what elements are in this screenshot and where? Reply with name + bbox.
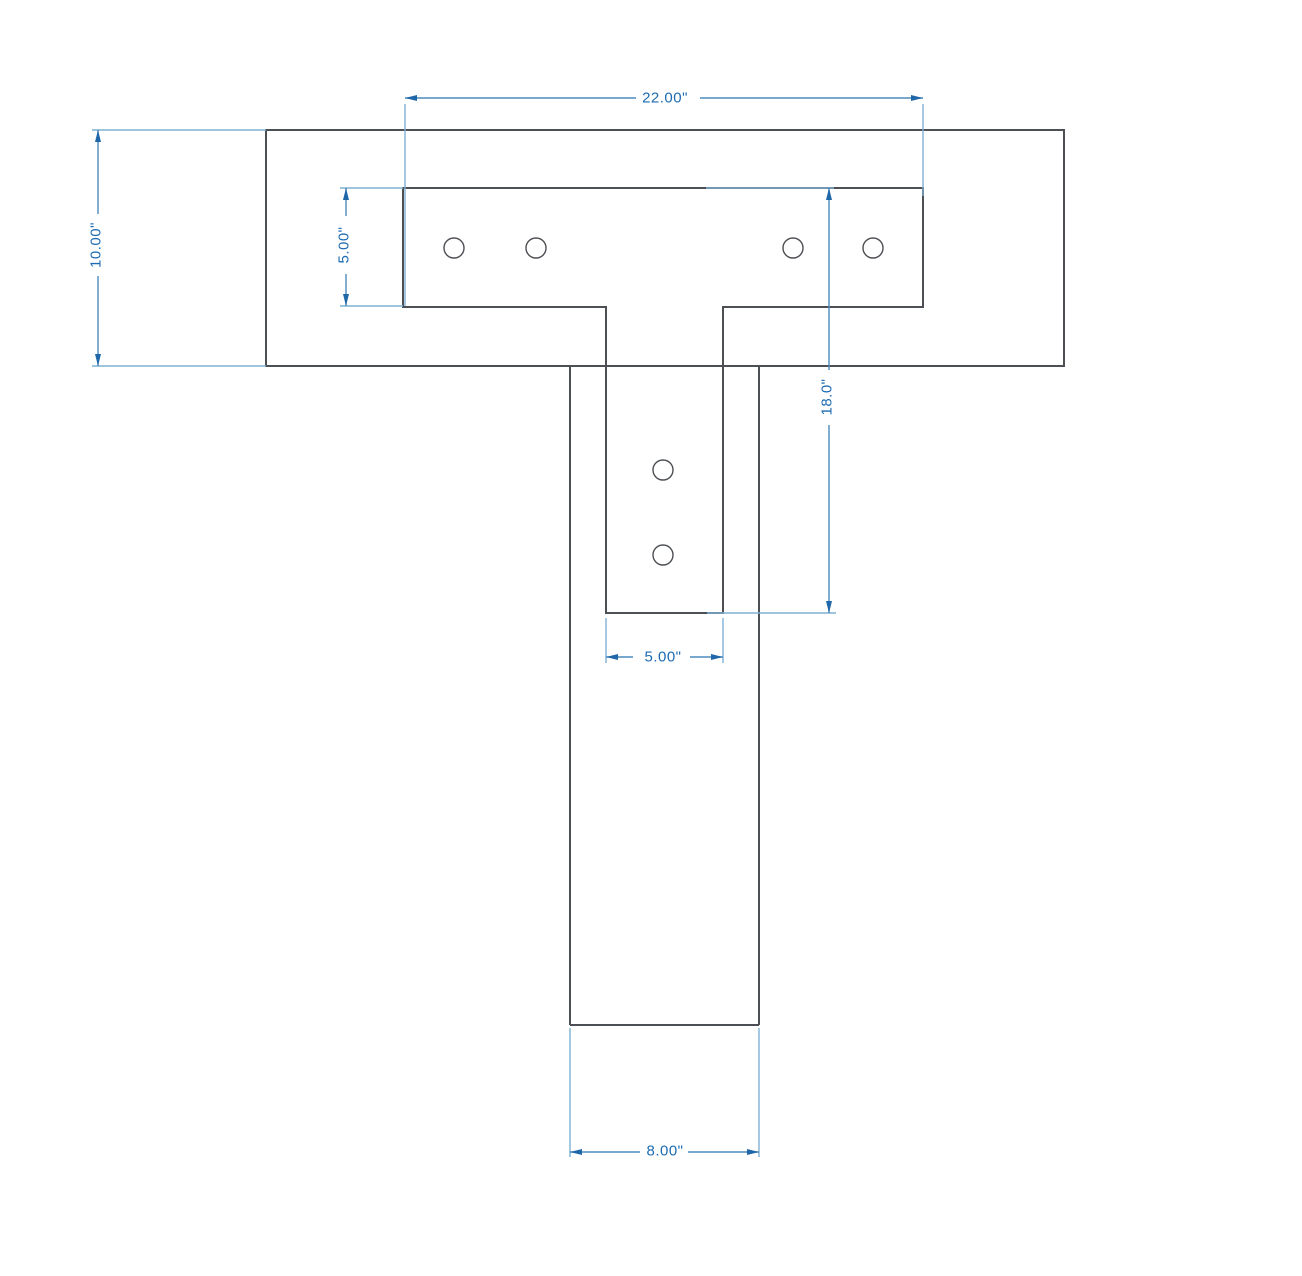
dim-plate-arm-height-label: 5.00"	[336, 226, 353, 263]
dim-plate-width-arrowhead	[405, 95, 417, 101]
dim-beam-height-arrowhead	[95, 130, 101, 142]
dim-bracket-height-label: 18.0"	[819, 378, 836, 415]
dim-bracket-height-arrowhead	[826, 601, 832, 613]
beam-outline	[266, 130, 1064, 366]
drawing-page: 22.00"10.00"5.00"18.0"5.00"8.00"	[0, 0, 1302, 1276]
dim-post-width-arrowhead	[570, 1149, 582, 1155]
dim-plate-arm-height-arrowhead	[343, 188, 349, 200]
dim-bracket-height-arrowhead	[826, 188, 832, 200]
bolt-hole	[653, 545, 673, 565]
dim-beam-height-arrowhead	[95, 354, 101, 366]
dim-beam-height-label: 10.00"	[88, 222, 105, 268]
dim-bracket-leg-width-label: 5.00"	[644, 649, 681, 666]
dim-plate-width-label: 22.00"	[642, 90, 688, 107]
technical-drawing-canvas: 22.00"10.00"5.00"18.0"5.00"8.00"	[0, 0, 1302, 1276]
dim-bracket-leg-width-arrowhead	[711, 654, 723, 660]
dim-bracket-leg-width-arrowhead	[606, 654, 618, 660]
bolt-hole	[783, 238, 803, 258]
bolt-hole	[444, 238, 464, 258]
bolt-hole	[653, 460, 673, 480]
dim-plate-width-arrowhead	[911, 95, 923, 101]
dim-plate-arm-height-arrowhead	[343, 294, 349, 306]
t-bracket-plate-outline	[403, 188, 923, 613]
bolt-hole	[863, 238, 883, 258]
dim-post-width-label: 8.00"	[646, 1143, 683, 1160]
bolt-hole	[526, 238, 546, 258]
dim-post-width-arrowhead	[747, 1149, 759, 1155]
